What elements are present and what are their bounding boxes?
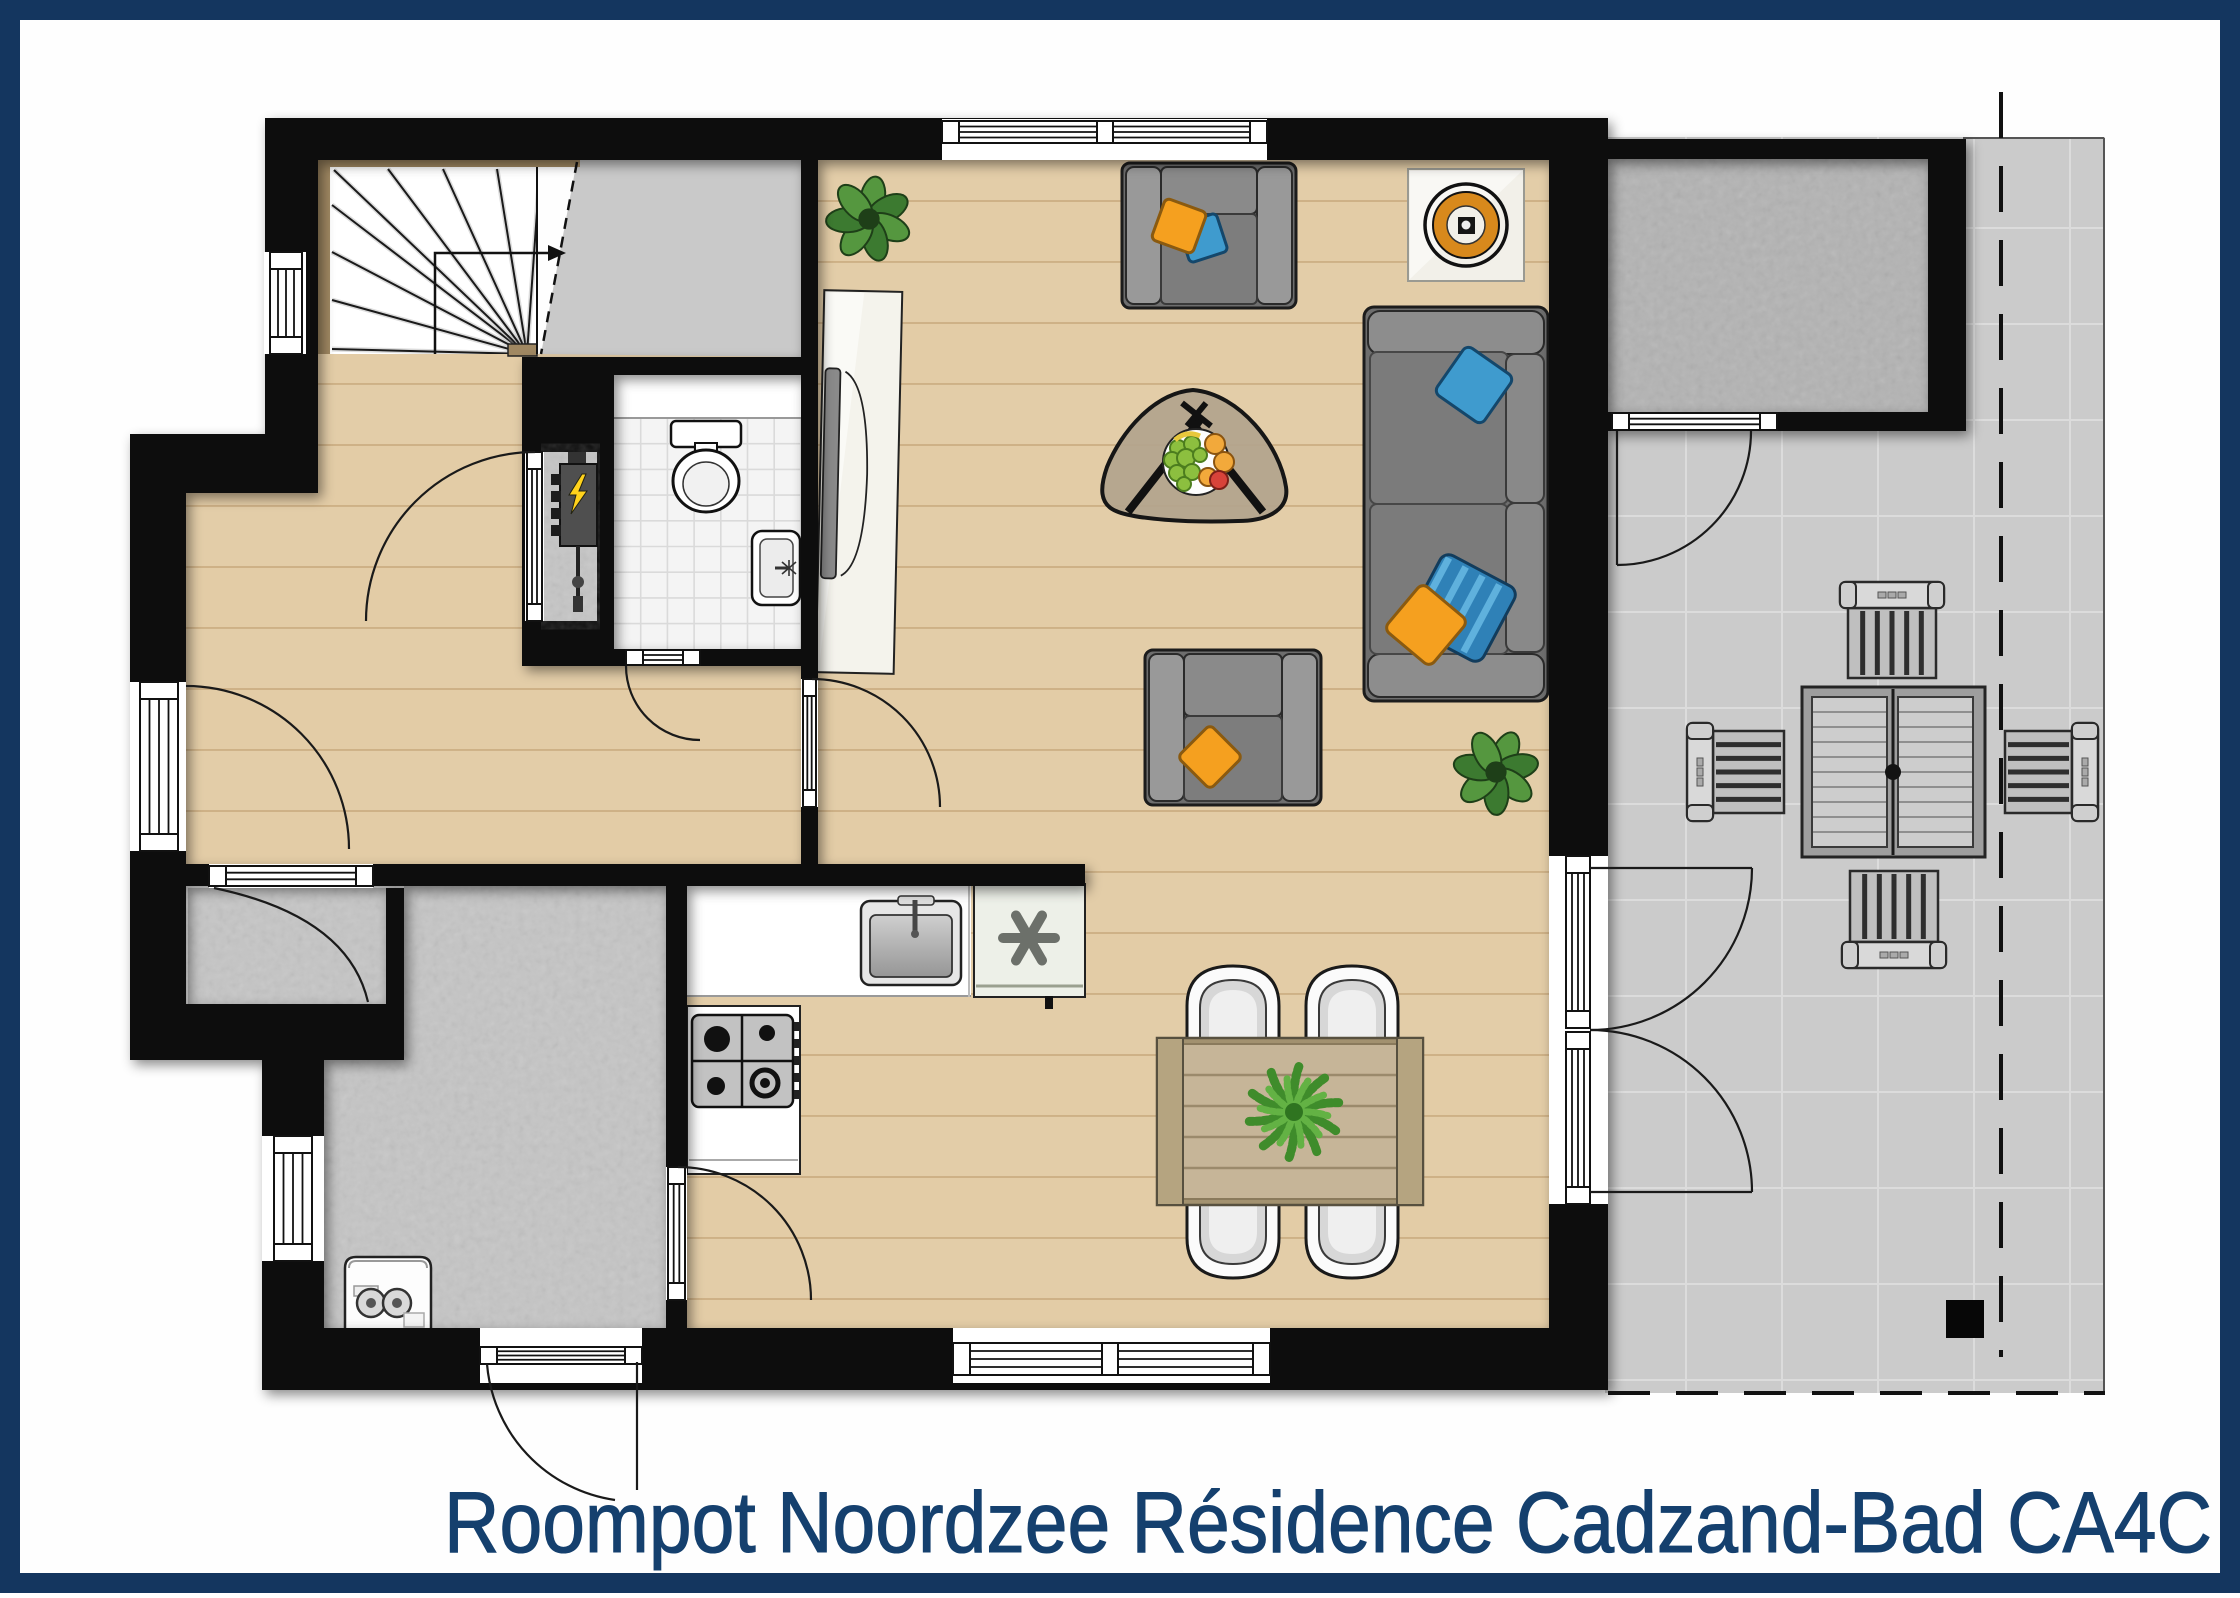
svg-text:Roompot Noordzee Résidence Cad: Roompot Noordzee Résidence Cadzand-Bad C… [444, 1475, 2212, 1571]
